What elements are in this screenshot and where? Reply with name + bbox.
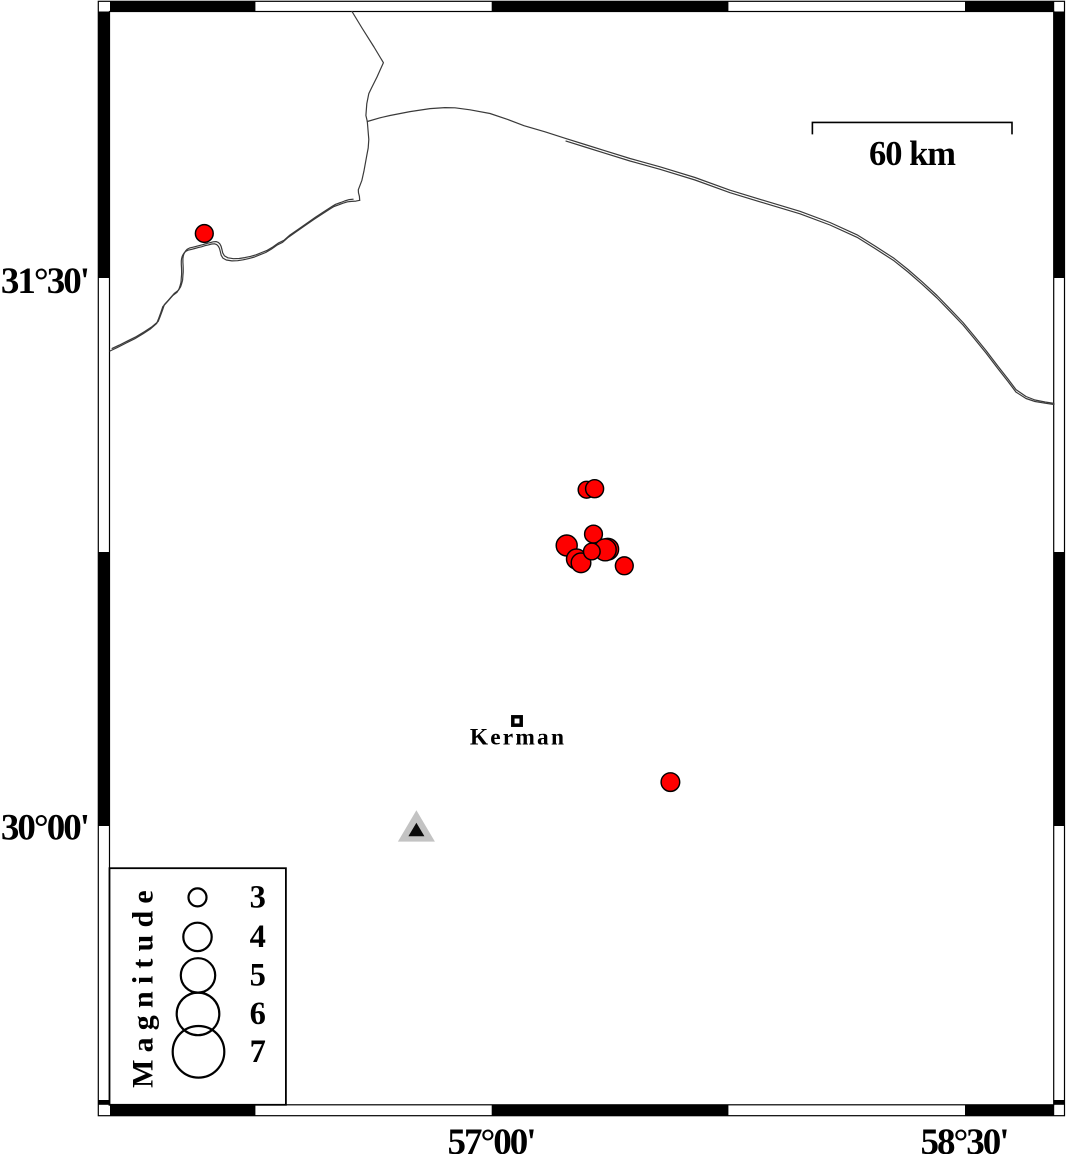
- svg-text:58°30': 58°30': [920, 1122, 1007, 1154]
- svg-text:6: 6: [250, 996, 266, 1032]
- svg-text:30°00': 30°00': [1, 808, 88, 849]
- svg-text:57°00': 57°00': [447, 1122, 534, 1154]
- svg-text:Magnitude: Magnitude: [127, 883, 160, 1088]
- svg-text:31°30': 31°30': [1, 261, 88, 302]
- svg-text:5: 5: [250, 958, 266, 994]
- svg-text:4: 4: [250, 919, 266, 955]
- svg-text:Kerman: Kerman: [470, 725, 566, 751]
- svg-text:60 km: 60 km: [869, 135, 956, 173]
- svg-text:7: 7: [250, 1034, 266, 1070]
- svg-text:3: 3: [250, 880, 266, 916]
